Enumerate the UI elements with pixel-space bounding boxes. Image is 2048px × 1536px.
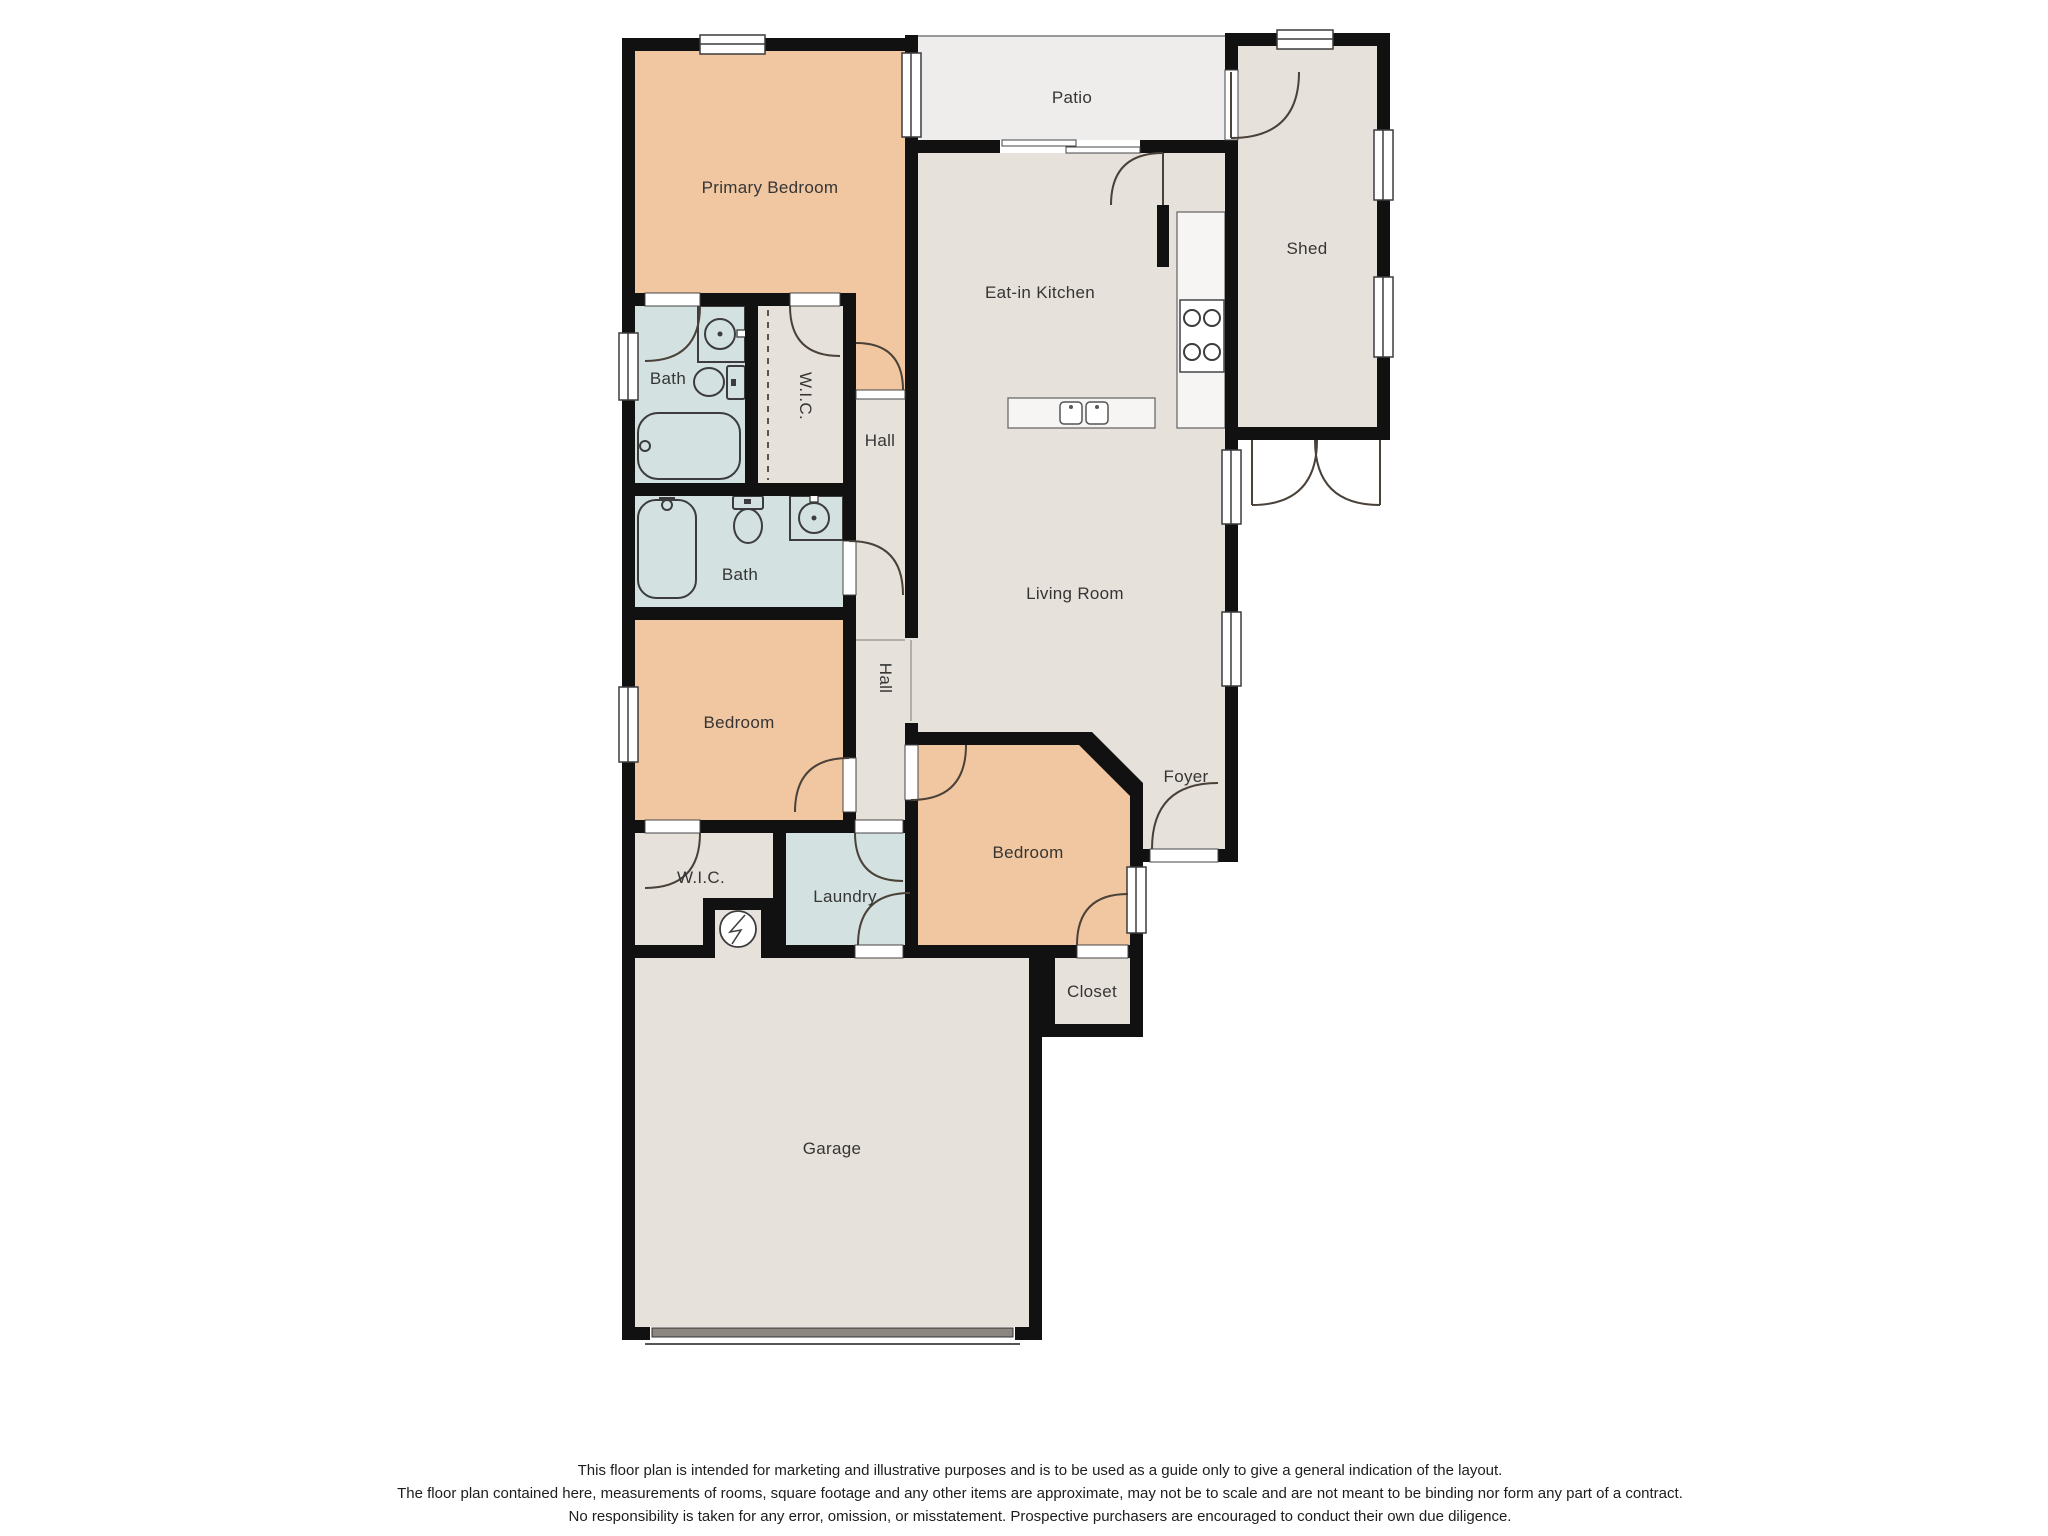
window <box>619 333 638 400</box>
room-foyer-label: Foyer <box>1164 767 1209 786</box>
window <box>700 35 765 54</box>
window <box>902 53 921 137</box>
room-bath-primary-label: Bath <box>650 369 686 388</box>
room-primary-bedroom-label: Primary Bedroom <box>702 178 839 197</box>
door-french-right <box>1315 440 1380 505</box>
room-bedroom-right-label: Bedroom <box>992 843 1063 862</box>
room-patio-label: Patio <box>1052 88 1092 107</box>
room-wic-secondary-label: W.I.C. <box>677 868 725 887</box>
window <box>619 687 638 762</box>
door-french-left <box>1252 440 1317 505</box>
disclaimer-line-3: No responsibility is taken for any error… <box>569 1508 1512 1525</box>
window <box>1127 867 1146 933</box>
room-living-room-label: Living Room <box>1026 584 1124 603</box>
room-bath-primary-area <box>635 306 745 483</box>
sliding-door-patio <box>1000 140 1140 153</box>
window <box>1277 30 1333 49</box>
floor-plan-canvas: Primary Bedroom Patio Shed Eat-in Kitche… <box>0 0 2048 1536</box>
room-laundry-label: Laundry <box>813 887 877 906</box>
window <box>1374 130 1393 200</box>
window <box>1374 277 1393 357</box>
room-eat-in-kitchen-label: Eat-in Kitchen <box>985 283 1095 302</box>
window <box>1222 450 1241 524</box>
room-hall-lower-label: Hall <box>876 663 895 694</box>
room-wic-primary-label: W.I.C. <box>796 372 815 420</box>
water-heater-icon <box>720 911 756 947</box>
room-bath-hall-label: Bath <box>722 565 758 584</box>
stove-icon <box>1180 300 1224 372</box>
window <box>1222 612 1241 686</box>
room-closet-label: Closet <box>1067 982 1117 1001</box>
room-bedroom-left-label: Bedroom <box>703 713 774 732</box>
room-garage-label: Garage <box>803 1139 862 1158</box>
room-shed-label: Shed <box>1287 239 1328 258</box>
room-shed-area <box>1238 46 1377 427</box>
disclaimer-line-1: This floor plan is intended for marketin… <box>578 1462 1503 1479</box>
disclaimer-line-2: The floor plan contained here, measureme… <box>397 1485 1683 1502</box>
room-hall-upper-label: Hall <box>865 431 896 450</box>
room-hall-area <box>856 395 905 820</box>
garage-door <box>645 1327 1020 1344</box>
